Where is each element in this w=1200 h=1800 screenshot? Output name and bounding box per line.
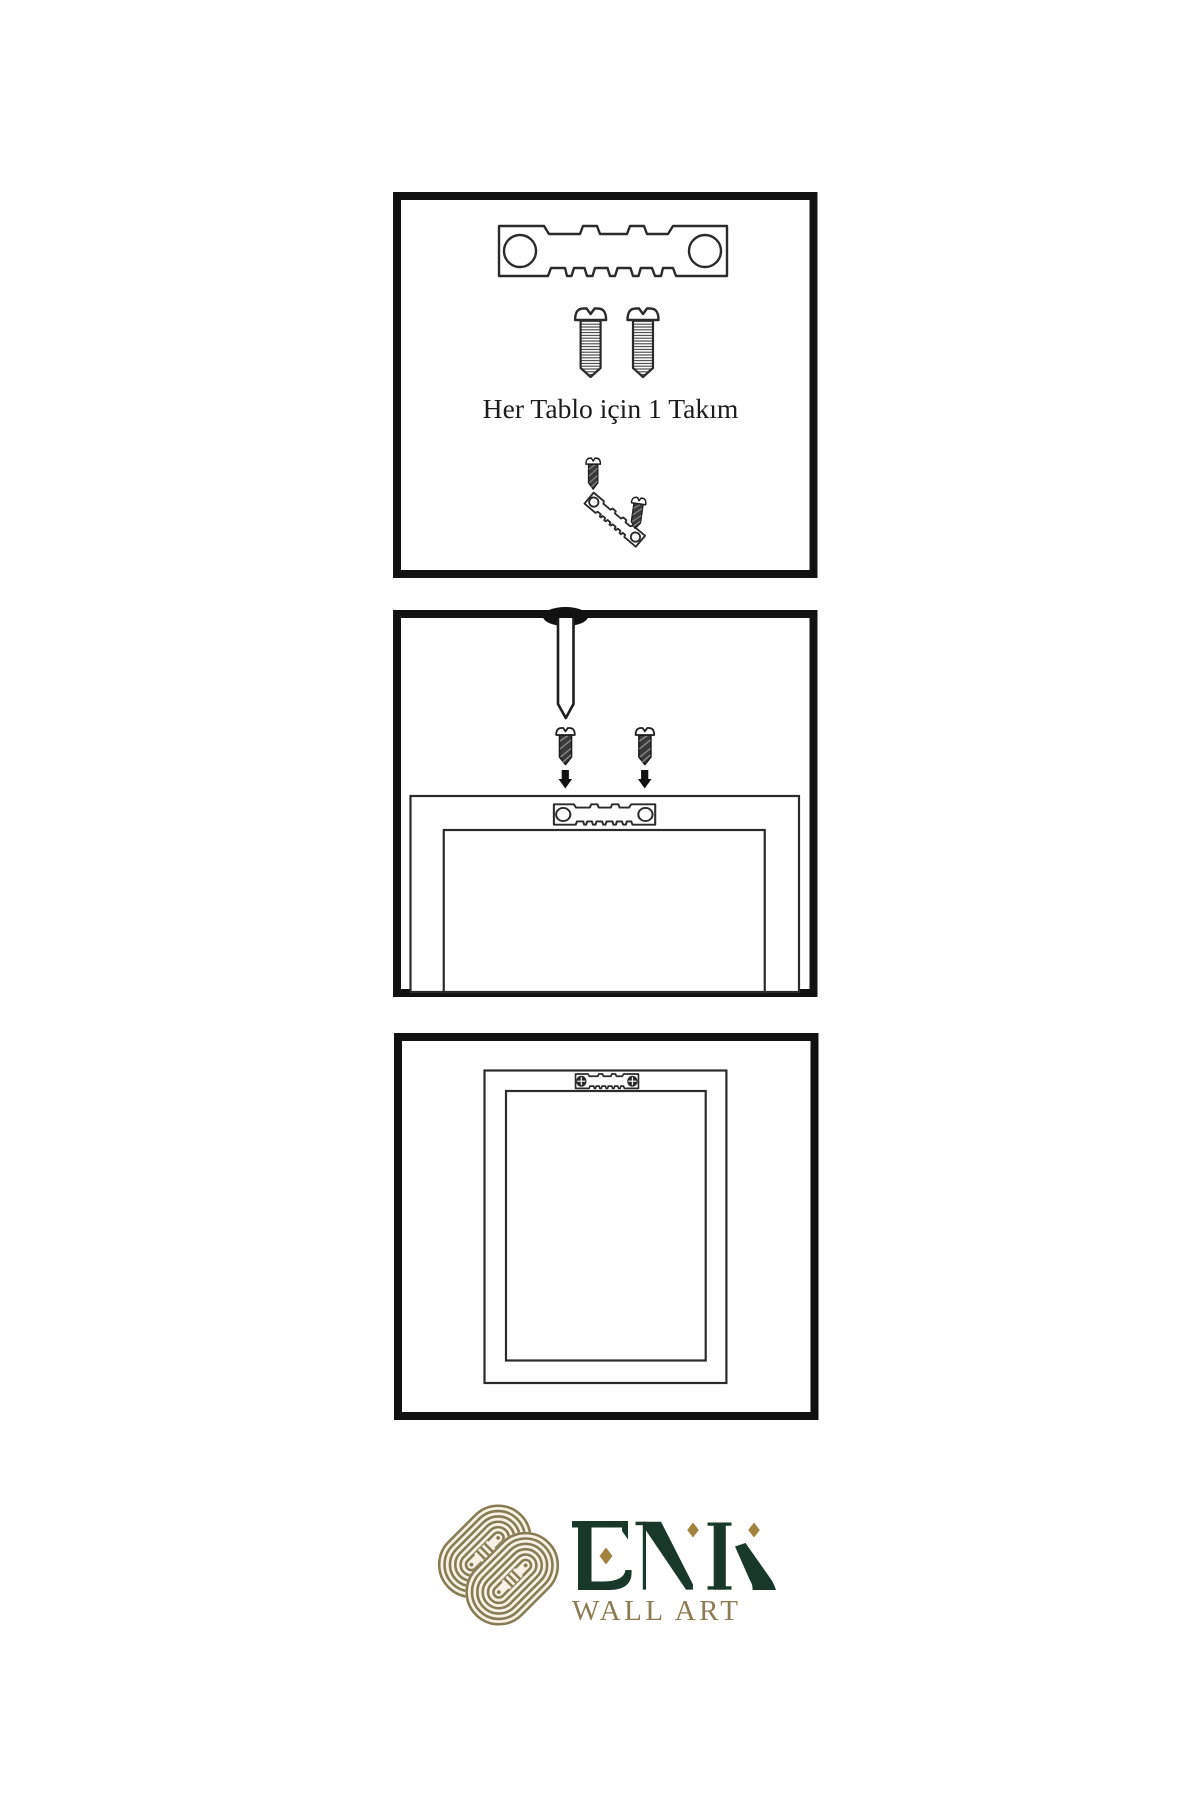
- svg-text:Her Tablo için 1 Takım: Her Tablo için 1 Takım: [483, 393, 739, 424]
